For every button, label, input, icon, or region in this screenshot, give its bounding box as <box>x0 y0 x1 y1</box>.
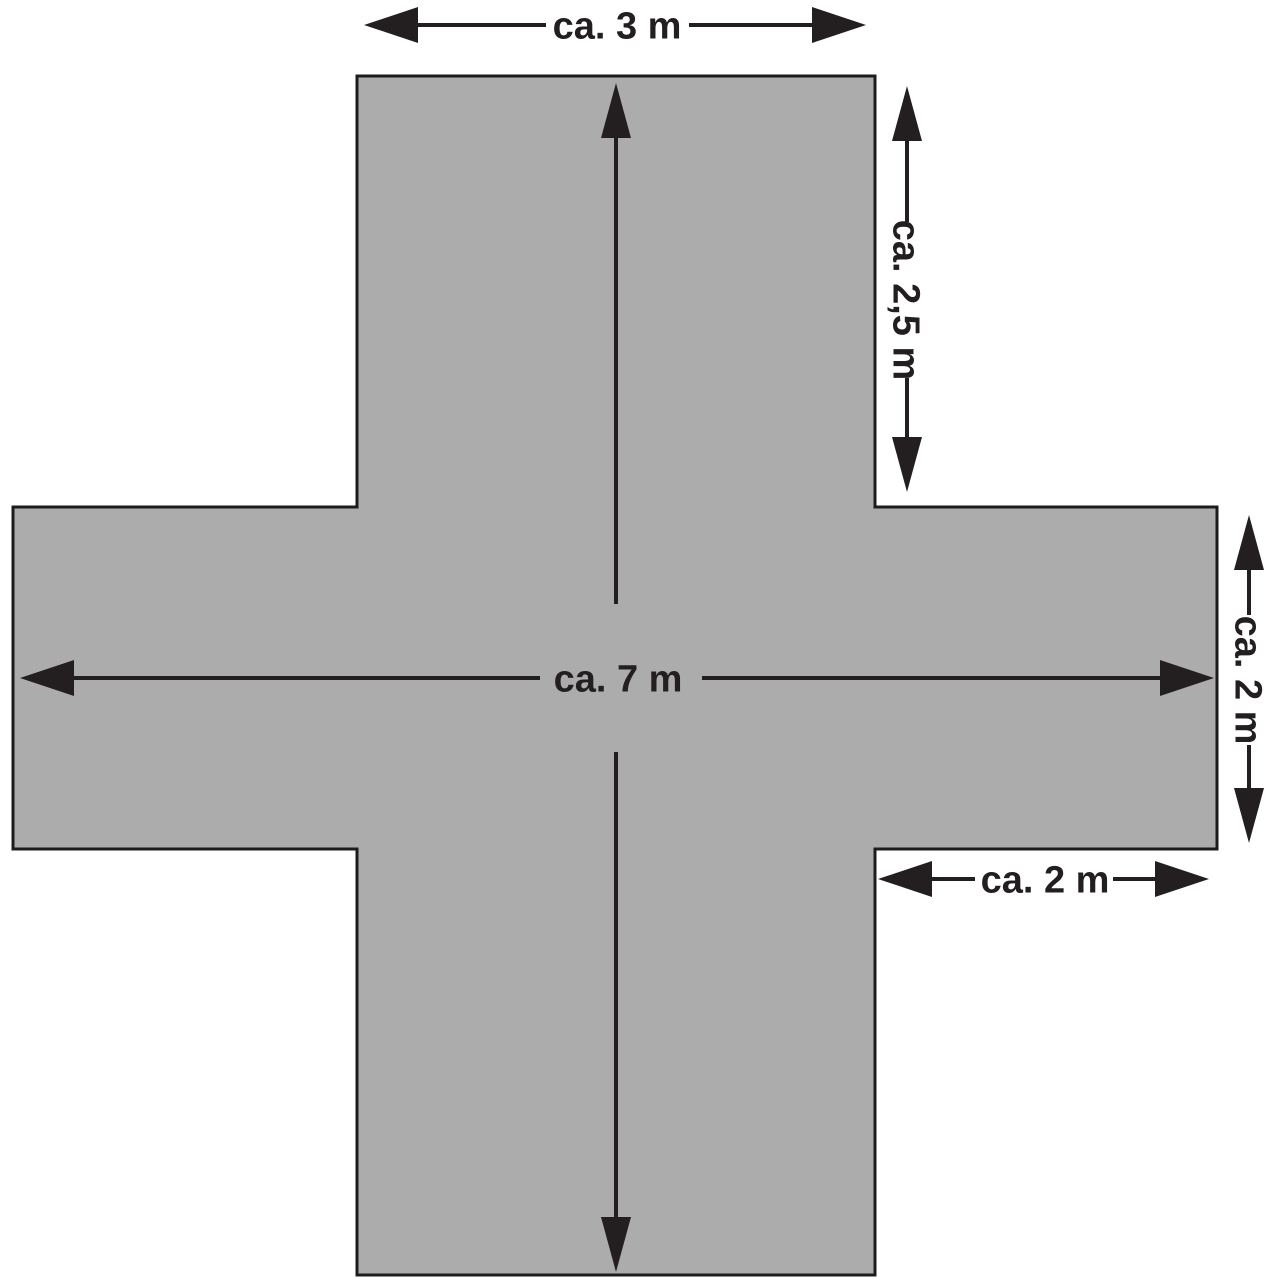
dimension-label: ca. 2 m <box>1227 616 1269 745</box>
dimension-right-arm-height: ca. 2 m <box>1227 515 1269 843</box>
arrowhead-left-icon <box>364 7 418 43</box>
dimension-label: ca. 3 m <box>553 5 682 47</box>
arrowhead-up-icon <box>1234 515 1264 570</box>
arrowhead-down-icon <box>1234 788 1264 843</box>
arrowhead-down-icon <box>892 437 922 492</box>
dimension-label: ca. 2,5 m <box>885 220 927 381</box>
arrowhead-up-icon <box>892 86 922 141</box>
dimension-top-width: ca. 3 m <box>364 5 866 47</box>
floor-plan-diagram: ca. 3 m ca. 2,5 m ca. 7 m <box>0 0 1280 1280</box>
arrowhead-right-icon <box>1155 861 1209 897</box>
dimension-right-arm-width: ca. 2 m <box>878 859 1209 901</box>
diagram-canvas: ca. 3 m ca. 2,5 m ca. 7 m <box>0 0 1280 1280</box>
dimension-label: ca. 2 m <box>981 859 1110 901</box>
arrowhead-right-icon <box>812 7 866 43</box>
dimension-label: ca. 7 m <box>554 658 683 700</box>
dimension-top-arm-height: ca. 2,5 m <box>885 86 927 492</box>
arrowhead-left-icon <box>878 861 932 897</box>
